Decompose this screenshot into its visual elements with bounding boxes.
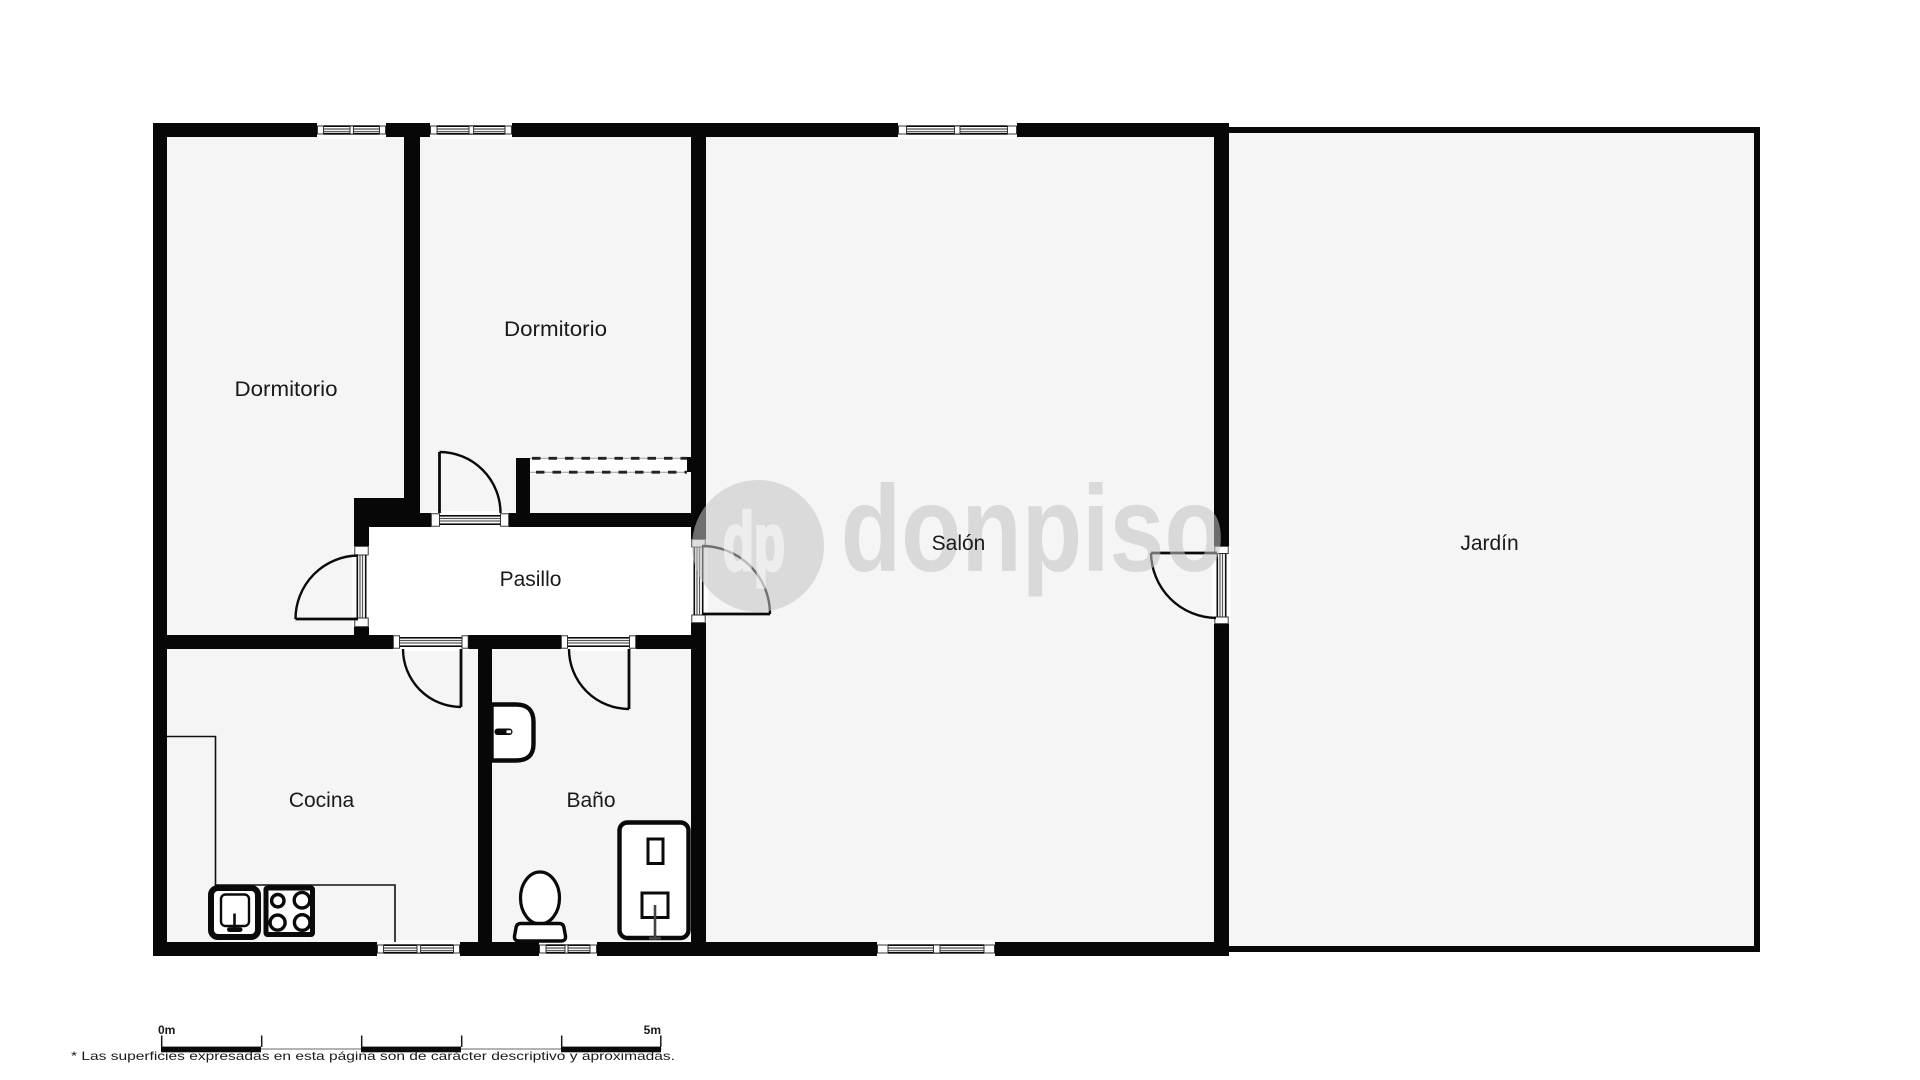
svg-text:Dormitorio: Dormitorio [235, 378, 338, 401]
svg-text:5m: 5m [644, 1023, 661, 1037]
svg-text:dp: dp [723, 497, 785, 588]
svg-text:donpiso: donpiso [841, 460, 1225, 598]
svg-text:0m: 0m [158, 1023, 175, 1037]
svg-text:Dormitorio: Dormitorio [504, 318, 607, 341]
svg-text:Jardín: Jardín [1460, 532, 1518, 555]
svg-text:Cocina: Cocina [289, 789, 355, 812]
svg-text:Baño: Baño [566, 789, 615, 812]
svg-text:* Las superficies expresadas e: * Las superficies expresadas en esta pág… [71, 1049, 675, 1063]
svg-text:Salón: Salón [932, 532, 986, 555]
svg-text:Pasillo: Pasillo [500, 568, 562, 591]
